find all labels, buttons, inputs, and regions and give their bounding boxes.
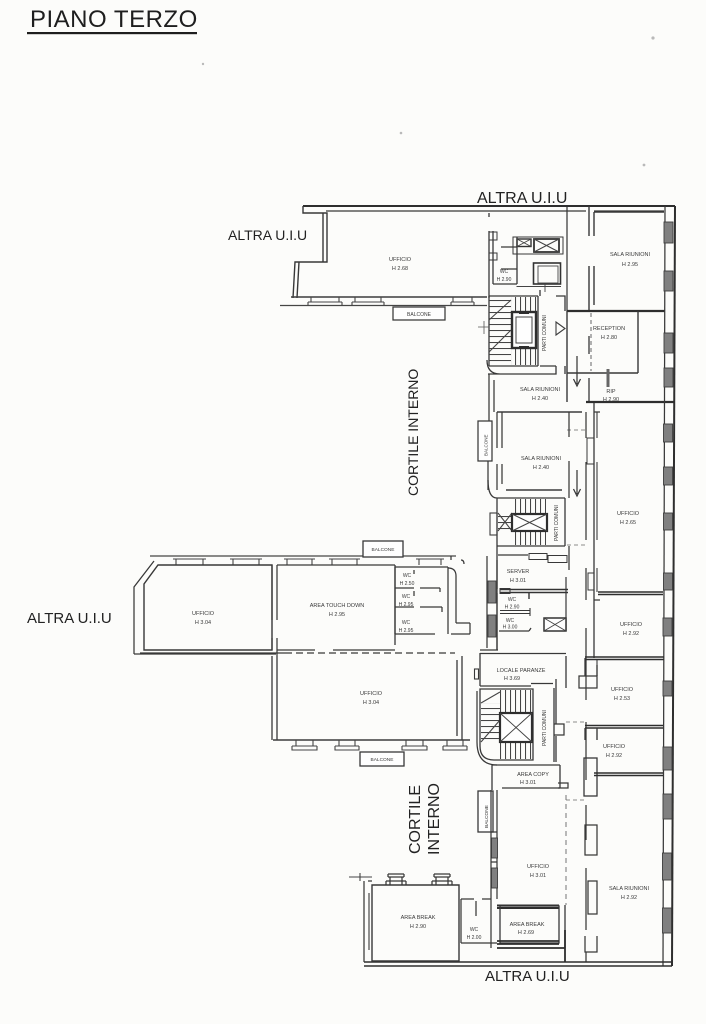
- svg-text:WC: WC: [403, 573, 412, 579]
- svg-text:H 3.69: H 3.69: [504, 676, 520, 682]
- svg-text:UFFICIO: UFFICIO: [603, 744, 626, 750]
- svg-text:SALA RIUNIONI: SALA RIUNIONI: [521, 456, 562, 462]
- svg-text:LOCALE PARANZE: LOCALE PARANZE: [497, 668, 546, 674]
- svg-text:BALCONE: BALCONE: [372, 547, 395, 553]
- svg-text:PIANO TERZO: PIANO TERZO: [30, 6, 198, 33]
- svg-text:BALCONE: BALCONE: [484, 434, 489, 456]
- svg-text:H 3.04: H 3.04: [195, 620, 211, 626]
- svg-text:SALA RIUNIONI: SALA RIUNIONI: [609, 886, 650, 892]
- svg-text:AREA BREAK: AREA BREAK: [510, 922, 545, 928]
- svg-text:H 2.92: H 2.92: [606, 753, 622, 759]
- svg-text:ALTRA U.I.U: ALTRA U.I.U: [485, 968, 570, 985]
- svg-text:AREA BREAK: AREA BREAK: [401, 915, 436, 921]
- svg-text:H 2.95: H 2.95: [329, 612, 345, 618]
- svg-text:UFFICIO: UFFICIO: [527, 864, 550, 870]
- svg-text:H 3.01: H 3.01: [520, 780, 536, 786]
- svg-text:ALTRA U.I.U: ALTRA U.I.U: [27, 610, 112, 627]
- svg-text:AREA COPY: AREA COPY: [517, 772, 549, 778]
- svg-text:SERVER: SERVER: [507, 569, 530, 575]
- svg-text:UFFICIO: UFFICIO: [617, 511, 640, 517]
- svg-text:UFFICIO: UFFICIO: [192, 611, 215, 617]
- svg-text:H 2.95: H 2.95: [399, 602, 414, 608]
- svg-text:RECEPTION: RECEPTION: [593, 326, 625, 332]
- svg-text:RIP: RIP: [606, 389, 616, 395]
- svg-text:SALA RIUNIONI: SALA RIUNIONI: [610, 252, 651, 258]
- svg-text:H 2.40: H 2.40: [533, 465, 549, 471]
- svg-text:H 2.90: H 2.90: [410, 924, 426, 930]
- svg-text:WC: WC: [402, 594, 411, 600]
- svg-text:BALCONE: BALCONE: [407, 312, 432, 318]
- svg-text:H 2.90: H 2.90: [497, 277, 512, 283]
- svg-text:ALTRA U.I.U: ALTRA U.I.U: [477, 190, 567, 207]
- svg-text:PARTI COMUNI: PARTI COMUNI: [542, 315, 548, 351]
- svg-text:H 2.90: H 2.90: [505, 605, 520, 611]
- svg-text:ALTRA U.I.U: ALTRA U.I.U: [228, 227, 307, 243]
- svg-text:H 3.00: H 3.00: [503, 625, 518, 631]
- svg-text:CORTILE: CORTILE: [407, 785, 424, 854]
- svg-text:H 3.04: H 3.04: [363, 700, 379, 706]
- svg-text:SALA RIUNIONI: SALA RIUNIONI: [520, 387, 561, 393]
- svg-text:H 2.80: H 2.80: [601, 335, 617, 341]
- svg-text:UFFICIO: UFFICIO: [620, 622, 643, 628]
- svg-text:H 2.50: H 2.50: [400, 581, 415, 587]
- svg-text:WC: WC: [508, 597, 517, 603]
- svg-text:PARTI COMUNI: PARTI COMUNI: [542, 710, 548, 746]
- svg-text:UFFICIO: UFFICIO: [611, 687, 634, 693]
- svg-text:WC: WC: [506, 618, 515, 624]
- svg-text:UFFICIO: UFFICIO: [389, 257, 412, 263]
- svg-text:H 2.92: H 2.92: [621, 895, 637, 901]
- svg-text:BALCONE: BALCONE: [371, 757, 394, 763]
- svg-text:UFFICIO: UFFICIO: [360, 691, 383, 697]
- svg-text:PARTI COMUNI: PARTI COMUNI: [554, 505, 560, 541]
- svg-text:H 2.69: H 2.69: [518, 930, 534, 936]
- svg-text:CORTILE INTERNO: CORTILE INTERNO: [405, 369, 421, 496]
- svg-text:H 2.95: H 2.95: [399, 628, 414, 634]
- svg-text:BALCONE: BALCONE: [484, 805, 490, 828]
- svg-text:H 2.95: H 2.95: [622, 262, 638, 268]
- svg-text:H 3.01: H 3.01: [530, 873, 546, 879]
- svg-text:H 2.65: H 2.65: [620, 520, 636, 526]
- svg-text:H 2.53: H 2.53: [614, 696, 630, 702]
- svg-text:WC: WC: [500, 269, 509, 275]
- svg-text:H 2.68: H 2.68: [392, 266, 408, 272]
- svg-text:INTERNO: INTERNO: [426, 783, 443, 855]
- svg-text:AREA TOUCH DOWN: AREA TOUCH DOWN: [310, 603, 365, 609]
- svg-text:H 2.40: H 2.40: [532, 396, 548, 402]
- svg-text:H 2.00: H 2.00: [467, 935, 482, 941]
- svg-text:WC: WC: [470, 927, 479, 933]
- svg-text:H 3.01: H 3.01: [510, 578, 526, 584]
- svg-text:H 2.92: H 2.92: [623, 631, 639, 637]
- svg-text:WC: WC: [402, 620, 411, 626]
